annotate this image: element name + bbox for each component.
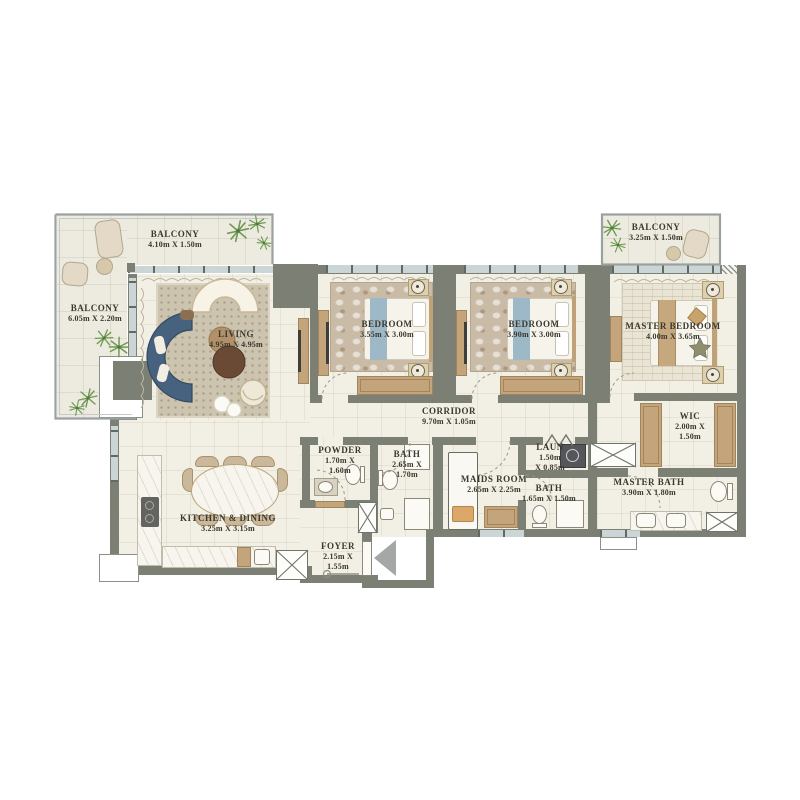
wall: [433, 442, 443, 537]
floor-plan: BALCONY4.10m X 1.50m BALCONY6.05m X 2.20…: [0, 0, 800, 800]
door-threshold: [315, 501, 345, 508]
nightstand-lamp-icon: [411, 280, 425, 294]
dining-table: [191, 464, 279, 518]
room-label-bath-1: BATH2.65m X1.70m: [392, 449, 422, 480]
toilet: [710, 481, 727, 502]
nightstand-lamp-icon: [554, 280, 568, 294]
wall: [596, 468, 628, 477]
room-label-bedroom-1: BEDROOM3.55m X 3.00m: [360, 319, 414, 340]
wic-closet-right: [714, 403, 736, 467]
room-label-kitchen-dining: KITCHEN & DINING3.25m X 3.15m: [180, 513, 276, 534]
wall: [362, 580, 434, 588]
wall: [343, 437, 408, 445]
burner-icon: [145, 501, 154, 510]
bedroom2-wardrobe: [500, 376, 583, 395]
bedroom2-window: [464, 265, 578, 273]
wall: [518, 445, 526, 475]
wall: [426, 537, 434, 580]
master-bath-window: [600, 530, 640, 537]
room-label-maids-room: MAIDS ROOM2.65m X 2.25m: [461, 474, 527, 495]
toilet-tank: [378, 470, 383, 486]
nightstand-lamp-icon: [706, 368, 720, 382]
wall: [302, 442, 310, 508]
wall: [585, 273, 610, 403]
bedroom1-window: [326, 265, 433, 273]
wall: [310, 273, 318, 403]
wall: [658, 468, 737, 477]
wall: [518, 500, 526, 529]
vanity-sink: [666, 513, 686, 528]
wall: [300, 437, 318, 445]
shaft-duct: [276, 550, 308, 580]
toilet-tank: [532, 523, 547, 528]
wall: [433, 273, 456, 403]
room-label-powder: POWDER1.70m X1.60m: [318, 445, 362, 476]
room-label-living: LIVING4.95m X 4.95m: [209, 329, 263, 350]
toilet: [532, 505, 547, 524]
master-balcony-door: [612, 265, 720, 273]
room-label-master-bedroom: MASTER BEDROOM4.00m X 3.65m: [625, 321, 720, 342]
room-label-master-bath: MASTER BATH3.90m X 1.80m: [613, 477, 684, 498]
room-label-bedroom-2: BEDROOM3.90m X 3.00m: [507, 319, 561, 340]
headboard: [429, 296, 433, 362]
entry-door: [362, 541, 372, 576]
burner-icon: [145, 514, 154, 523]
entry-arrow-icon: [374, 540, 396, 576]
shower: [556, 500, 584, 528]
sink: [318, 481, 333, 493]
wall: [498, 395, 585, 403]
room-label-balcony-master: BALCONY3.25m X 1.50m: [629, 222, 683, 243]
sink: [380, 508, 394, 520]
nightstand-lamp-icon: [706, 283, 720, 297]
room-label-corridor: CORRIDOR9.70m X 1.05m: [422, 406, 476, 427]
balcony-chair: [61, 261, 89, 287]
tv-icon: [464, 322, 467, 364]
maids-wardrobe: [484, 506, 518, 528]
shaft-duct: [706, 512, 738, 532]
kitchen-sink: [254, 549, 270, 565]
dining-chair: [195, 456, 219, 467]
balcony-table: [666, 246, 681, 261]
headboard: [572, 296, 576, 362]
bath-shower-tray: [404, 498, 430, 530]
cutting-board: [237, 547, 251, 567]
pillow: [452, 506, 474, 522]
bedroom1-wardrobe: [357, 376, 433, 395]
wall: [432, 437, 476, 445]
maids-window: [478, 530, 524, 537]
balcony-table: [96, 258, 113, 275]
room-label-laundry: LAUN1.50mX 0.85m: [535, 442, 565, 473]
wic-closet-left: [640, 403, 662, 467]
room-label-foyer: FOYER2.15m X1.55m: [321, 541, 355, 572]
washer-door-icon: [566, 449, 579, 462]
room-label-balcony-top: BALCONY4.10m X 1.50m: [148, 229, 202, 250]
column: [113, 361, 152, 400]
shaft-duct: [590, 443, 636, 467]
tv-icon: [326, 322, 329, 364]
toilet-tank: [727, 483, 733, 500]
wall: [634, 393, 746, 401]
room-label-bath-2: BATH1.65m X 1.50m: [522, 483, 576, 504]
room-label-balcony-side: BALCONY6.05m X 2.20m: [68, 303, 122, 324]
master-dresser: [610, 316, 622, 362]
pillow: [412, 302, 426, 327]
vanity-sink: [636, 513, 656, 528]
exterior-ledge: [99, 554, 139, 582]
kitchen-window: [111, 426, 118, 482]
living-rug: [156, 283, 270, 418]
dining-chair: [251, 456, 275, 467]
shaft-duct: [358, 502, 377, 533]
tv-icon: [298, 330, 301, 372]
wall: [127, 263, 135, 272]
room-label-wic: WIC2.00m X1.50m: [675, 411, 705, 442]
exterior-ledge: [600, 537, 637, 550]
wall: [737, 265, 746, 537]
living-balcony-window: [128, 266, 273, 273]
balcony-chair: [93, 218, 124, 259]
